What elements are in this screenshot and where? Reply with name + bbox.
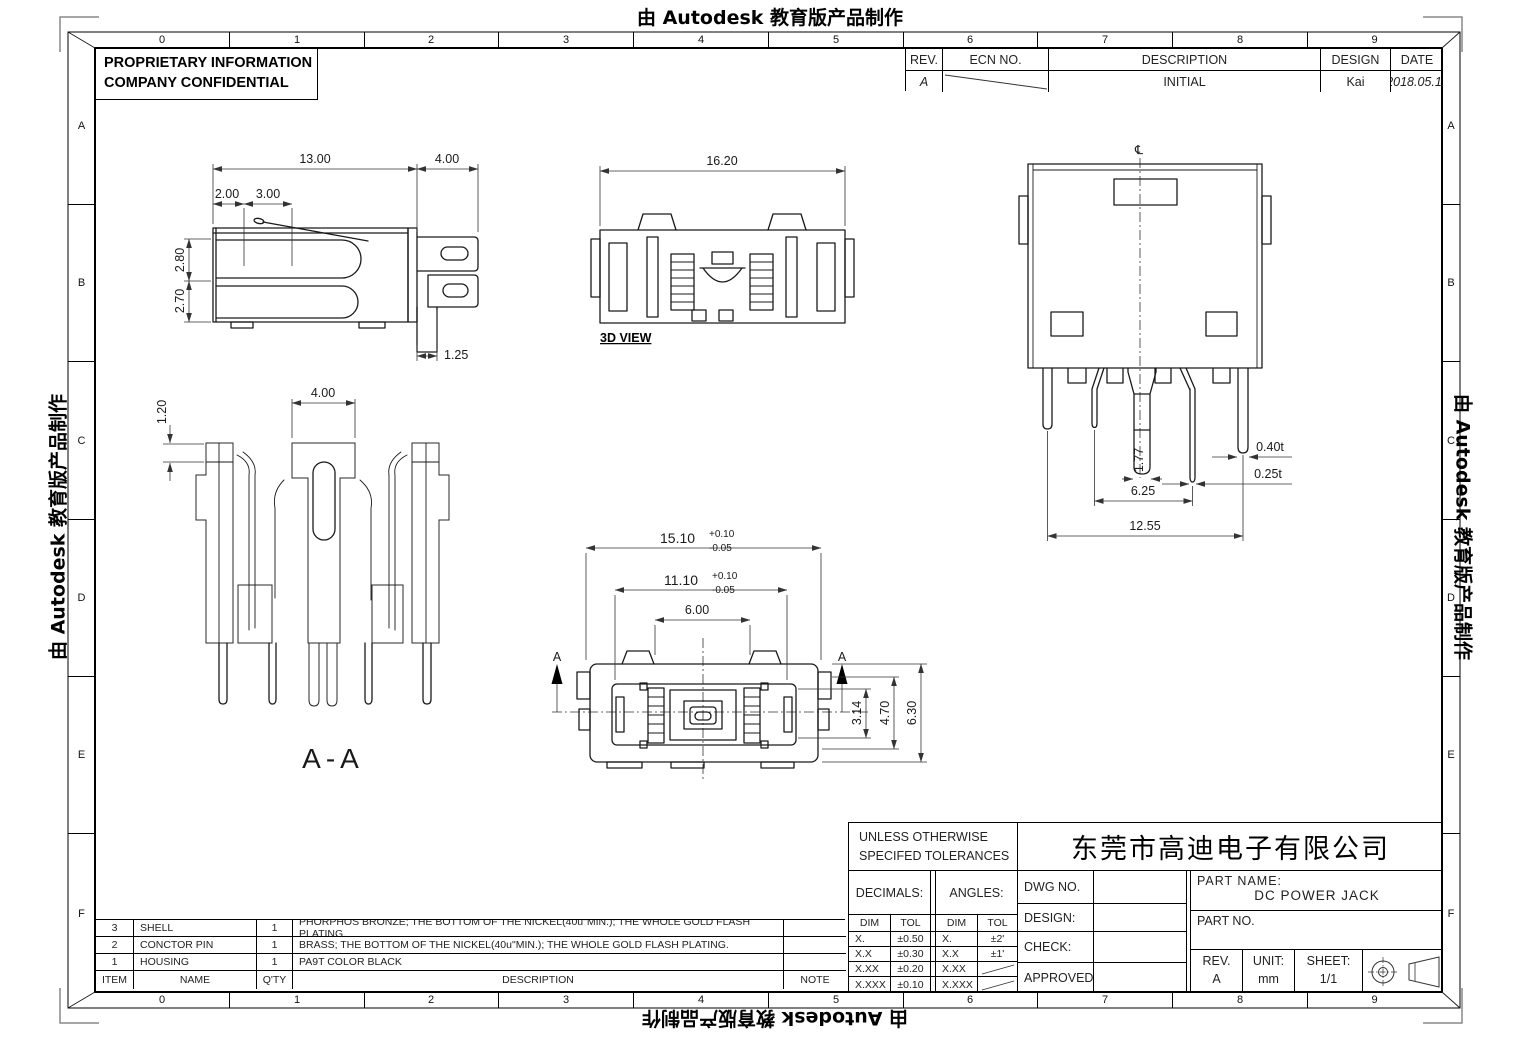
ruler-row: A <box>1442 48 1460 205</box>
ruler-row: C <box>68 363 95 520</box>
ruler-row: B <box>1442 205 1460 362</box>
section-marker-right: A <box>838 650 847 664</box>
approved-label: APPROVED <box>1018 963 1094 993</box>
dim-040t: 0.40t <box>1256 440 1284 454</box>
ruler-col: 7 <box>1038 992 1173 1008</box>
section-view-outline <box>206 443 439 704</box>
ruler-col: 8 <box>1173 32 1308 48</box>
dim-314: 3.14 <box>850 701 864 725</box>
top-view: ℄ 0.40t <box>1019 143 1292 541</box>
autodesk-watermark-left: 由 Autodesk 教育版产品制作 <box>44 394 71 660</box>
dim-3: 3.00 <box>256 187 280 201</box>
bom-table: 3 SHELL 1 PHORPHOS BRONZE; THE BOTTOM OF… <box>95 919 845 988</box>
side-view-dimensions: 13.00 4.00 2.00 3.00 2.80 2.70 1.25 <box>173 152 478 362</box>
bom-description-header: DESCRIPTION <box>293 971 784 989</box>
dec-tol: ±0.20 <box>891 962 931 977</box>
rev-cell: REV. A <box>1191 950 1243 993</box>
third-angle-projection-icon <box>1363 951 1443 993</box>
bom-item: 1 <box>96 954 134 971</box>
sheet-label: SHEET: <box>1307 953 1351 971</box>
bom-note <box>784 937 846 954</box>
ruler-col: 9 <box>1307 32 1442 48</box>
dim-470: 4.70 <box>878 701 892 725</box>
design-label: DESIGN: <box>1018 904 1094 932</box>
dec-dim-header: DIM <box>849 915 891 932</box>
bom-qty: 1 <box>257 920 293 937</box>
front-view-outline <box>591 214 854 323</box>
design-header: DESIGN <box>1321 49 1391 71</box>
dec-dim: X.XXX <box>849 977 891 993</box>
revision-table: REV. ECN NO. DESCRIPTION DESIGN DATE A I… <box>905 48 1442 91</box>
ang-tol: ±2' <box>978 932 1018 947</box>
ang-tol: ±1' <box>978 947 1018 962</box>
tolerance-title: UNLESS OTHERWISE SPECIFED TOLERANCES <box>849 823 1018 871</box>
dec-tol: ±0.30 <box>891 947 931 962</box>
bom-note <box>784 920 846 937</box>
description-value: INITIAL <box>1049 71 1321 92</box>
ruler-col: 7 <box>1038 32 1173 48</box>
ruler-col: 0 <box>95 32 230 48</box>
bom-description: PHORPHOS BRONZE; THE BOTTOM OF THE NICKE… <box>293 920 784 937</box>
unit-label: UNIT: <box>1253 953 1284 971</box>
dim-1620: 16.20 <box>706 154 737 168</box>
bom-qty-header: Q'TY <box>257 971 293 989</box>
dim-600: 6.00 <box>685 603 709 617</box>
ruler-col: 9 <box>1307 992 1442 1008</box>
unit-value: mm <box>1258 971 1279 989</box>
ang-dim-header: DIM <box>936 915 978 932</box>
dim-270: 2.70 <box>173 289 187 313</box>
bom-name: HOUSING <box>134 954 257 971</box>
dim-1110-upper-tol: +0.10 <box>712 571 738 582</box>
tolerance-title-line2: SPECIFED TOLERANCES <box>859 847 1009 865</box>
proprietary-line1: PROPRIETARY INFORMATION <box>104 54 317 74</box>
side-view-outline <box>213 218 478 352</box>
top-view-dimensions: 0.40t 0.25t 1.77 6.25 12.55 <box>1048 430 1293 541</box>
dim-1110-lower-tol: -0.05 <box>712 585 735 596</box>
dec-tol-header: TOL <box>891 915 931 932</box>
top-view-outline <box>1019 164 1271 482</box>
company-name: 东莞市高迪电子有限公司 <box>1018 823 1443 871</box>
ruler-col: 6 <box>903 32 1038 48</box>
design-value: Kai <box>1321 71 1391 92</box>
ruler-col: 2 <box>364 992 499 1008</box>
section-label: A-A <box>302 743 364 774</box>
front-view: 16.20 3D VIEW <box>591 154 854 345</box>
dec-dim: X.XX <box>849 962 891 977</box>
dec-dim: X.X <box>849 947 891 962</box>
dim-1510-lower-tol: -0.05 <box>709 543 732 554</box>
approved-value <box>1094 963 1187 993</box>
bom-description: PA9T COLOR BLACK <box>293 954 784 971</box>
ruler-row: E <box>68 677 95 834</box>
ruler-row: A <box>68 48 95 205</box>
ang-dim: X. <box>936 932 978 947</box>
ang-tol-blank <box>978 962 1018 977</box>
dim-625: 6.25 <box>1131 484 1155 498</box>
proprietary-note: PROPRIETARY INFORMATION COMPANY CONFIDEN… <box>95 48 318 100</box>
blank-slash <box>979 963 1017 976</box>
bom-qty: 1 <box>257 954 293 971</box>
dim-1110: 11.10 <box>664 572 698 588</box>
section-marker-left: A <box>553 650 562 664</box>
drawing-sheet: 13.00 4.00 2.00 3.00 2.80 2.70 1.25 <box>0 0 1522 1040</box>
unit-cell: UNIT: mm <box>1243 950 1295 993</box>
bom-qty: 1 <box>257 937 293 954</box>
dim-1255: 12.55 <box>1129 519 1160 533</box>
part-name-value: DC POWER JACK <box>1191 888 1443 903</box>
projection-symbol-cell <box>1363 950 1443 993</box>
design-value <box>1094 904 1187 932</box>
dim-1510-upper-tol: +0.10 <box>709 529 735 540</box>
rev-label: REV. <box>1202 953 1230 971</box>
bom-note <box>784 954 846 971</box>
dec-tol: ±0.10 <box>891 977 931 993</box>
dim-13: 13.00 <box>299 152 330 166</box>
rev-value: A <box>1212 971 1220 989</box>
dim-120: 1.20 <box>155 400 169 424</box>
rev-value: A <box>906 71 943 92</box>
dim-4: 4.00 <box>435 152 459 166</box>
ruler-col: 2 <box>364 32 499 48</box>
ruler-col: 1 <box>230 992 365 1008</box>
section-view: 4.00 1.20 A-A <box>155 386 449 774</box>
decimals-label: DECIMALS: <box>849 871 931 915</box>
check-label: CHECK: <box>1018 932 1094 963</box>
ruler-col: 5 <box>769 32 904 48</box>
autodesk-watermark-right: 由 Autodesk 教育版产品制作 <box>1451 394 1478 660</box>
ruler-row: B <box>68 205 95 362</box>
autodesk-watermark-bottom: 由 Autodesk 教育版产品制作 <box>595 1006 955 1033</box>
ang-dim: X.X <box>936 947 978 962</box>
ecn-header: ECN NO. <box>943 49 1049 71</box>
side-view: 13.00 4.00 2.00 3.00 2.80 2.70 1.25 <box>173 152 478 362</box>
rev-header: REV. <box>906 49 943 71</box>
ruler-col: 8 <box>1173 992 1308 1008</box>
date-header: DATE <box>1391 49 1443 71</box>
date-value: 2018.05.11 <box>1391 71 1443 92</box>
bom-name: CONCTOR PIN <box>134 937 257 954</box>
dim-400: 4.00 <box>311 386 335 400</box>
ang-dim: X.XXX <box>936 977 978 993</box>
dim-630: 6.30 <box>905 701 919 725</box>
autodesk-watermark-top: 由 Autodesk 教育版产品制作 <box>560 3 980 30</box>
bom-description: BRASS; THE BOTTOM OF THE NICKEL(40u"MIN.… <box>293 937 784 954</box>
blank-slash <box>979 979 1017 992</box>
dec-dim: X. <box>849 932 891 947</box>
part-no-cell: PART NO. <box>1191 911 1443 950</box>
tolerance-title-line1: UNLESS OTHERWISE <box>859 828 988 846</box>
dim-025t: 0.25t <box>1254 467 1282 481</box>
check-value <box>1094 932 1187 963</box>
proprietary-line2: COMPANY CONFIDENTIAL <box>104 74 317 94</box>
bom-name-header: NAME <box>134 971 257 989</box>
ang-tol-blank <box>978 977 1018 993</box>
ruler-col: 1 <box>230 32 365 48</box>
part-name-label: PART NAME: <box>1191 871 1443 888</box>
dim-2: 2.00 <box>215 187 239 201</box>
description-header: DESCRIPTION <box>1049 49 1321 71</box>
bom-item: 3 <box>96 920 134 937</box>
ruler-col: 0 <box>95 992 230 1008</box>
ang-dim: X.XX <box>936 962 978 977</box>
dim-280: 2.80 <box>173 248 187 272</box>
ruler-row: E <box>1442 677 1460 834</box>
sheet-cell: SHEET: 1/1 <box>1295 950 1363 993</box>
title-block: UNLESS OTHERWISE SPECIFED TOLERANCES 东莞市… <box>848 822 1442 992</box>
part-name-cell: PART NAME: DC POWER JACK <box>1191 871 1443 911</box>
sheet-value: 1/1 <box>1320 971 1337 989</box>
front-view-dimensions: 16.20 <box>600 154 845 226</box>
dim-1510: 15.10 <box>660 530 695 546</box>
ecn-blank-slash <box>944 72 1048 91</box>
bom-item-header: ITEM <box>96 971 134 989</box>
angles-label: ANGLES: <box>936 871 1018 915</box>
dec-tol: ±0.50 <box>891 932 931 947</box>
bom-name: SHELL <box>134 920 257 937</box>
dwg-no-value <box>1094 871 1187 904</box>
ruler-col: 4 <box>634 32 769 48</box>
bom-note-header: NOTE <box>784 971 846 989</box>
ruler-row: D <box>68 520 95 677</box>
dim-125: 1.25 <box>444 348 468 362</box>
bottom-view: 15.10 +0.10 -0.05 11.10 +0.10 -0.05 6.00… <box>552 529 928 780</box>
ruler-col: 3 <box>499 32 634 48</box>
front-view-label: 3D VIEW <box>600 331 652 345</box>
ang-tol-header: TOL <box>978 915 1018 932</box>
ruler-row: F <box>1442 835 1460 992</box>
bom-item: 2 <box>96 937 134 954</box>
bottom-view-dimensions: 15.10 +0.10 -0.05 11.10 +0.10 -0.05 6.00… <box>552 529 928 762</box>
dim-177: 1.77 <box>1132 448 1146 472</box>
ruler-row: F <box>68 835 95 992</box>
centerline-symbol: ℄ <box>1134 143 1144 157</box>
dwg-no-label: DWG NO. <box>1018 871 1094 904</box>
ecn-value <box>943 71 1049 92</box>
